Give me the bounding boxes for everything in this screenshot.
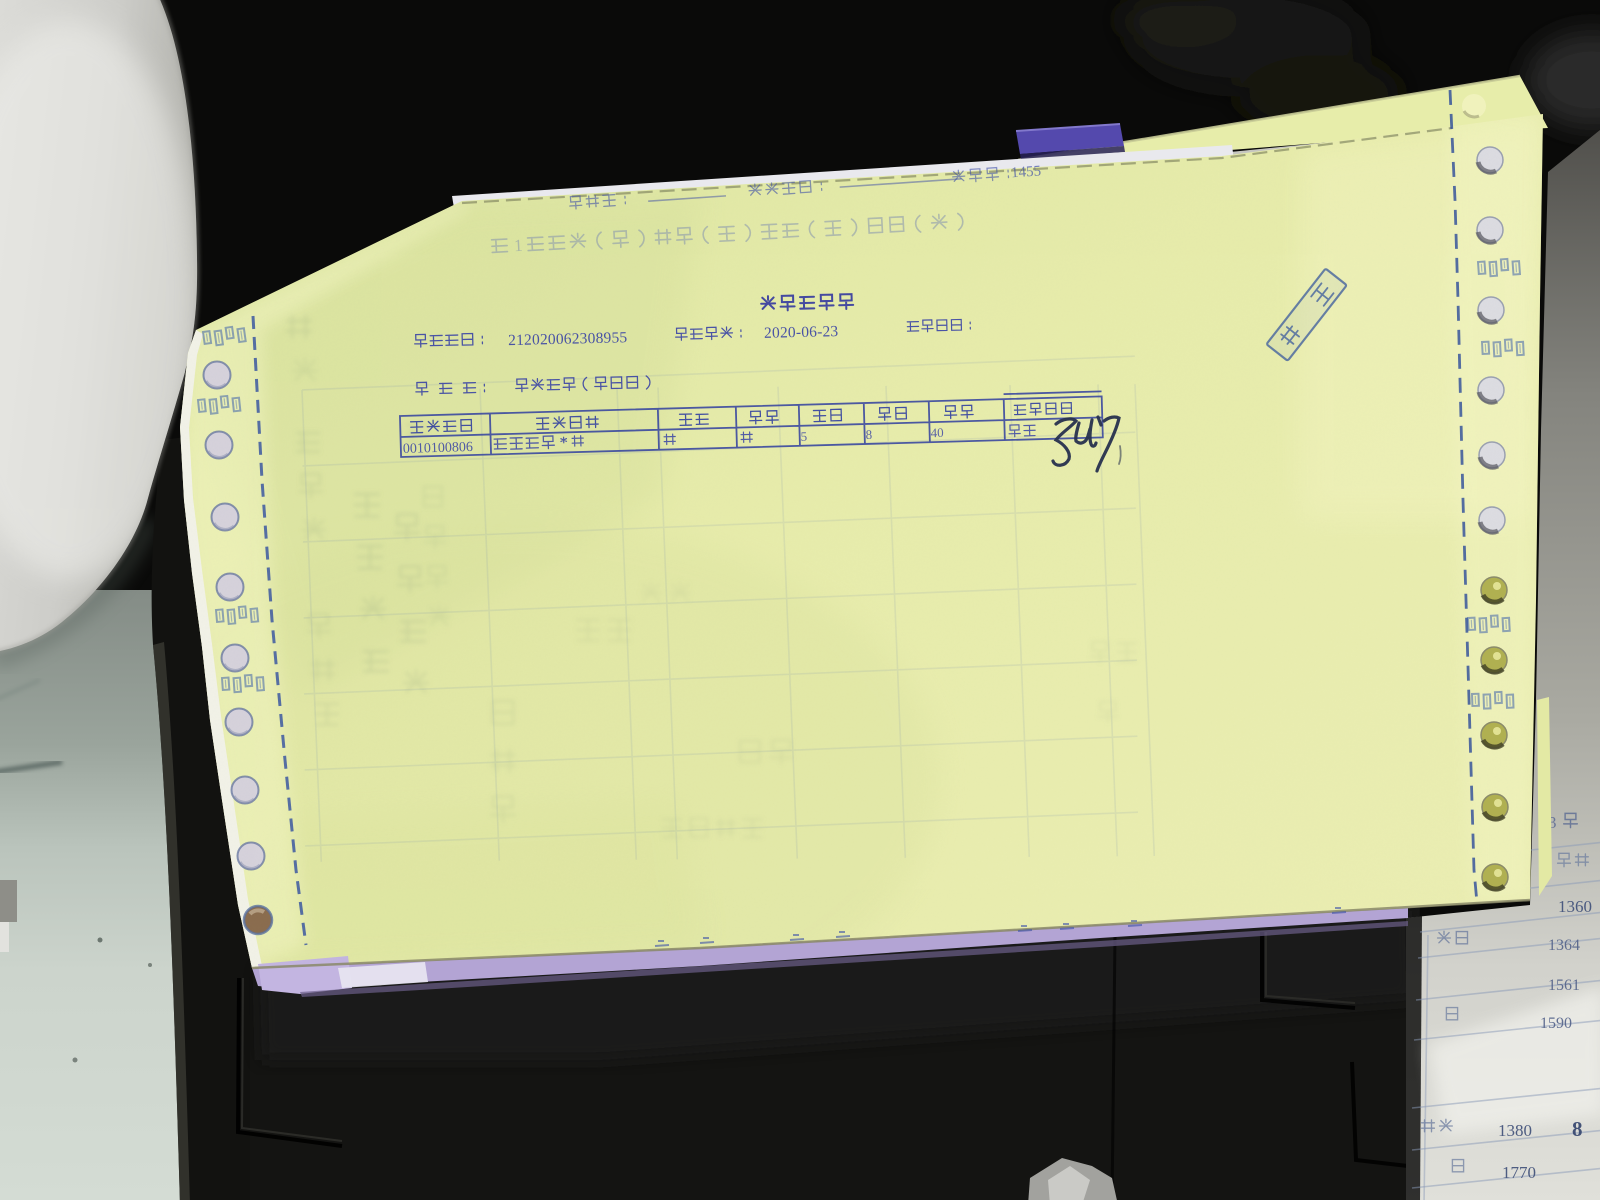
svg-text:8: 8 — [1572, 1117, 1583, 1141]
svg-text:1561: 1561 — [1548, 977, 1580, 994]
svg-text:1770: 1770 — [1502, 1163, 1536, 1182]
svg-text:1364: 1364 — [1548, 937, 1580, 954]
svg-text:1590: 1590 — [1540, 1015, 1572, 1032]
svg-text:1360: 1360 — [1558, 897, 1592, 916]
svg-text:1380: 1380 — [1498, 1121, 1532, 1140]
